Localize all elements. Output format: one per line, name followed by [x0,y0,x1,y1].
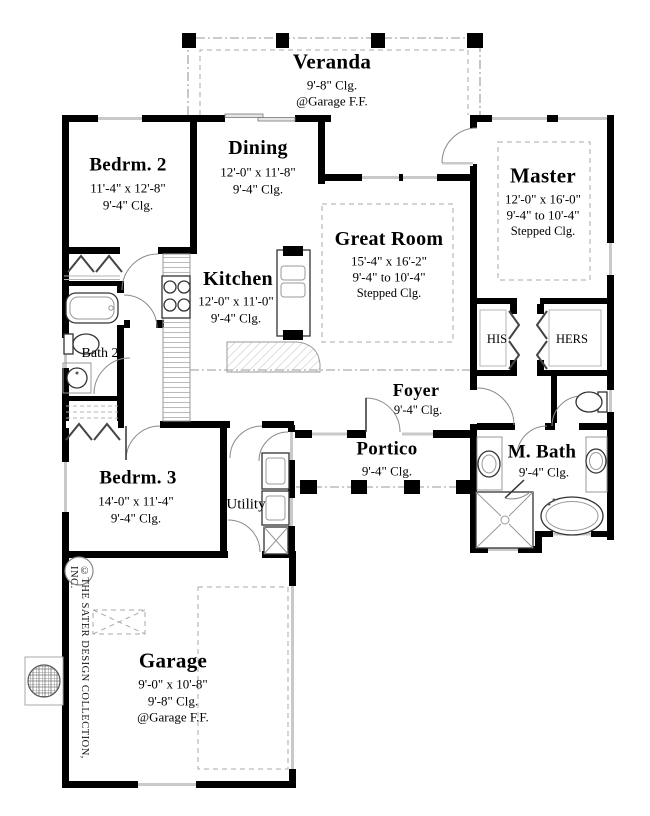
dryer [262,491,289,525]
vanity-sink-left [477,437,502,490]
room-label-great-room: Great Room [335,229,444,249]
bedrm3-ceiling: 9'-4" Clg. [111,512,161,525]
master-bathtub [541,497,603,535]
garage-door-ceiling-outline [198,587,288,769]
attic-access-symbol [93,610,145,634]
room-label-hers-closet: HERS [556,333,588,346]
bathtub-bath2 [66,293,118,323]
mbath-ceiling: 9'-4" Clg. [519,466,569,479]
room-label-bath2: Bath 2 [82,347,119,361]
veranda-columns [182,33,483,48]
great-room-ceiling-range: 9'-4" to 10'-4" [352,271,425,284]
tree-symbol [25,657,63,705]
room-label-his-closet: HIS [487,333,507,346]
kitchen-dims: 12'-0" x 11'-0" [198,295,273,308]
foyer-ceiling: 9'-4" Clg. [394,404,442,417]
garage-ceiling: 9'-8" Clg. [148,695,198,708]
room-label-utility: Utility [226,498,265,513]
closet-shelving [64,276,601,418]
range-stove [162,276,190,318]
veranda-note: @Garage F.F. [296,95,368,108]
master-dims: 12'-0" x 16'-0" [505,193,581,206]
toilet-wc [576,392,607,412]
curved-counter [227,342,320,372]
room-label-veranda: Veranda [293,52,371,73]
veranda-ceiling: 9'-8" Clg. [307,79,357,92]
room-label-bedrm3: Bedrm. 3 [99,469,176,488]
room-label-bedrm2: Bedrm. 2 [89,156,166,175]
room-label-dining: Dining [228,138,288,158]
great-room-dims: 15'-4" x 16'-2" [351,255,427,268]
garage-note: @Garage F.F. [137,711,209,724]
master-ceiling-range: 9'-4" to 10'-4" [506,209,579,222]
floor-plan-drawing [0,0,650,816]
room-label-foyer: Foyer [393,381,439,399]
kitchen-ceiling: 9'-4" Clg. [211,312,261,325]
room-label-kitchen: Kitchen [203,269,273,289]
room-label-portico: Portico [356,440,417,459]
portico-ceiling: 9'-4" Clg. [362,465,412,478]
garage-dims: 9'-0" x 10'-8" [138,678,207,691]
laundry-tub [264,527,288,554]
room-label-mbath: M. Bath [508,443,577,462]
great-room-ceiling-type: Stepped Clg. [357,287,422,300]
room-label-master: Master [510,166,576,187]
bedrm3-dims: 14'-0" x 11'-4" [98,495,173,508]
room-label-garage: Garage [139,651,207,672]
kitchen-island-sink [277,246,310,340]
dining-ceiling: 9'-4" Clg. [233,183,283,196]
washer [262,453,289,489]
dining-dims: 12'-0" x 11'-8" [220,166,295,179]
master-ceiling-type: Stepped Clg. [511,225,576,238]
copyright-text: ©THE SATER DESIGN COLLECTION, INC. [68,566,90,780]
floor-plan: Veranda 9'-8" Clg. @Garage F.F. Bedrm. 2… [0,0,650,816]
vanity-sink-right [586,437,607,492]
veranda-door-threshold [442,160,473,166]
bedrm2-dims: 11'-4" x 12'-8" [90,182,165,195]
bedrm2-ceiling: 9'-4" Clg. [103,199,153,212]
